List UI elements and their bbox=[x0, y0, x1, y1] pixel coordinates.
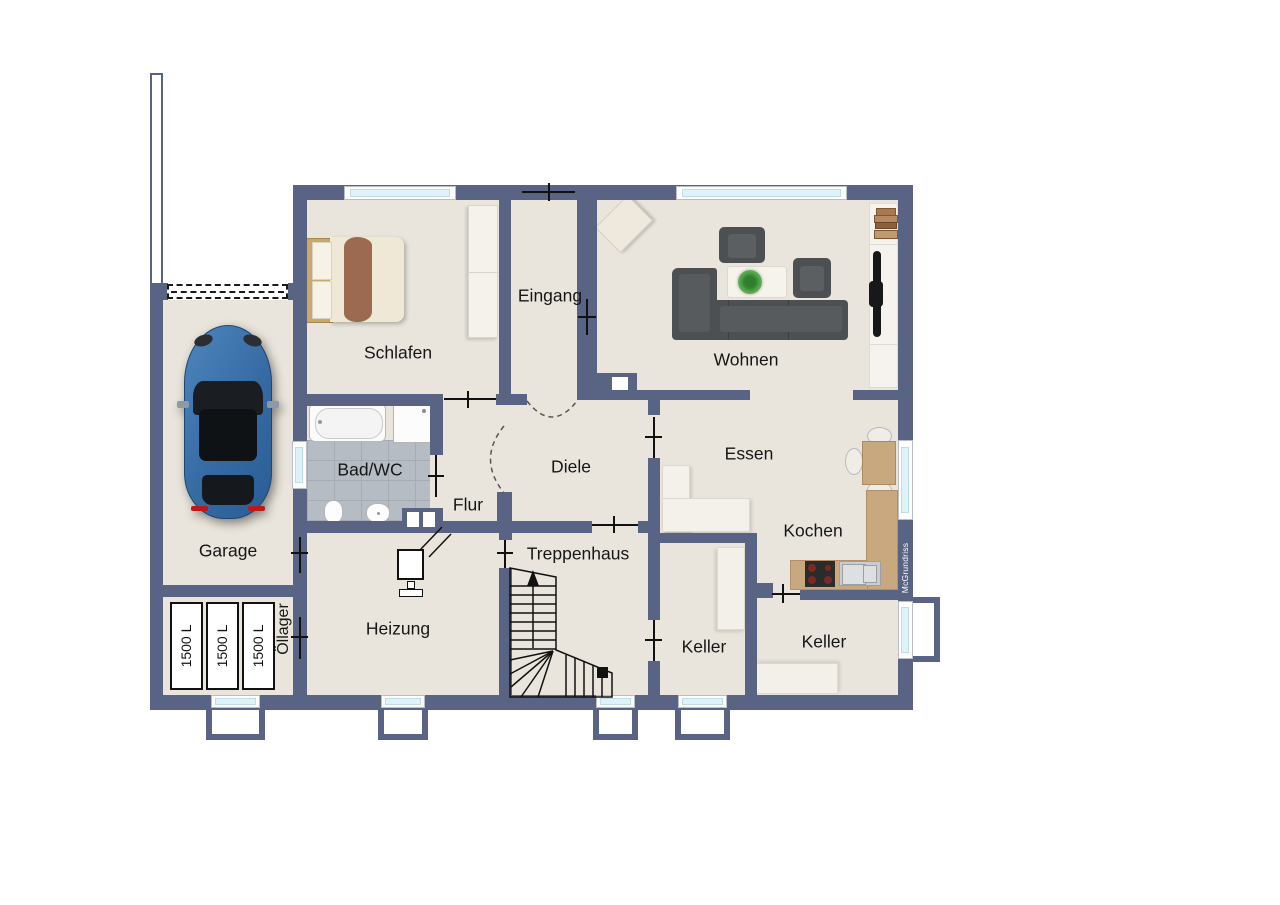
wall-kochen-keller bbox=[800, 590, 898, 600]
wall-diele-essen-top bbox=[648, 400, 660, 415]
door-schlafen bbox=[444, 398, 496, 400]
wall-schlafen-bad bbox=[293, 394, 443, 406]
door-diele-treppenhaus-tick bbox=[613, 516, 615, 533]
garage-door bbox=[167, 284, 288, 299]
keller-shelf bbox=[717, 547, 745, 630]
door-kochen-keller-tick bbox=[782, 584, 784, 603]
bathtub bbox=[309, 403, 386, 442]
wall-garage-left bbox=[150, 283, 163, 695]
door-schlafen-tick bbox=[467, 391, 469, 408]
light-well-heizung bbox=[378, 705, 428, 740]
label-keller-left: Keller bbox=[682, 638, 727, 656]
wall-garage-top-right bbox=[288, 283, 307, 300]
wall-bottom bbox=[150, 695, 913, 710]
bidet bbox=[366, 503, 390, 523]
door-garage-heizung-tick bbox=[291, 552, 308, 554]
shaft-1 bbox=[407, 512, 419, 527]
window-wohnen-glass bbox=[682, 189, 841, 197]
corner-bench bbox=[662, 465, 748, 530]
books bbox=[874, 208, 896, 242]
window-bad-glass bbox=[295, 447, 303, 483]
wardrobe bbox=[468, 205, 498, 338]
boiler-neck bbox=[407, 581, 415, 589]
shower bbox=[393, 404, 431, 443]
door-garage-heizung bbox=[299, 537, 301, 573]
tv bbox=[871, 251, 885, 337]
window-essen-glass bbox=[901, 447, 909, 513]
label-bad: Bad/WC bbox=[337, 461, 402, 479]
window-schlafen-glass bbox=[350, 189, 450, 197]
shaft-2 bbox=[423, 512, 435, 527]
wall-bad-right bbox=[430, 394, 443, 455]
chimney-flue bbox=[612, 377, 628, 390]
light-well-treppenhaus bbox=[593, 705, 638, 740]
armchair-top bbox=[719, 227, 765, 263]
wall-diele-essen-bottom bbox=[648, 458, 660, 522]
keller-workbench bbox=[756, 663, 838, 694]
door-kochen-keller bbox=[772, 593, 800, 595]
window-treppenhaus-glass bbox=[600, 698, 631, 705]
wall-wohnen-essen-right bbox=[853, 390, 898, 400]
stove bbox=[805, 561, 835, 587]
label-keller-right: Keller bbox=[802, 633, 847, 651]
label-garage: Garage bbox=[199, 542, 257, 560]
boiler-base bbox=[399, 589, 423, 597]
boundary-wall bbox=[150, 73, 163, 285]
oil-tank-1-label: 1500 L bbox=[178, 606, 194, 686]
label-oellager: Öllager bbox=[276, 603, 292, 655]
door-bad-tick bbox=[428, 475, 444, 477]
door-diele-essen-tick bbox=[645, 436, 662, 438]
bed bbox=[306, 237, 404, 322]
door-diele-treppenhaus bbox=[592, 524, 638, 526]
door-treppenhaus-keller-tick bbox=[645, 639, 662, 641]
label-flur: Flur bbox=[453, 496, 483, 514]
wall-treppenhaus-keller-top bbox=[648, 522, 660, 620]
plant bbox=[738, 270, 762, 294]
wall-flur-stub bbox=[496, 394, 527, 405]
light-well-keller bbox=[675, 705, 730, 740]
door-heizung-oellager-tick bbox=[291, 636, 308, 638]
dining-chair-left bbox=[845, 448, 863, 475]
window-oellager-glass bbox=[215, 698, 256, 705]
window-keller-bottom-glass bbox=[682, 698, 723, 705]
window-keller-right-glass bbox=[901, 607, 909, 653]
watermark: McGrundriss bbox=[900, 533, 912, 603]
wall-garage-oellager bbox=[150, 585, 307, 597]
floor-plan: 1500 L 1500 L 1500 L bbox=[0, 0, 1280, 905]
label-heizung: Heizung bbox=[366, 620, 430, 638]
door-eingang-wohnen-tick bbox=[578, 316, 596, 318]
wall-keller-keller bbox=[745, 543, 757, 695]
window-heizung-glass bbox=[385, 698, 421, 705]
light-well-oellager bbox=[206, 705, 265, 740]
light-well-right bbox=[910, 597, 940, 662]
wall-wohnen-essen-left bbox=[637, 390, 750, 400]
door-heizung-treppenhaus-tick bbox=[497, 552, 513, 554]
oil-tank-3-label: 1500 L bbox=[250, 606, 266, 686]
wall-treppenhaus-left bbox=[499, 568, 512, 695]
door-entrance-tick bbox=[548, 183, 550, 201]
wall-garage-top-left bbox=[150, 283, 168, 300]
wall-keller-stub bbox=[757, 583, 773, 598]
wall-treppenhaus-left-top bbox=[499, 533, 512, 540]
label-eingang: Eingang bbox=[518, 287, 582, 305]
oil-tank-2-label: 1500 L bbox=[214, 606, 230, 686]
label-wohnen: Wohnen bbox=[714, 351, 779, 369]
boiler bbox=[397, 549, 424, 580]
label-kochen: Kochen bbox=[783, 522, 842, 540]
dining-table bbox=[862, 441, 896, 485]
label-treppenhaus: Treppenhaus bbox=[527, 545, 629, 563]
toilet bbox=[324, 500, 343, 523]
car bbox=[184, 325, 272, 519]
label-diele: Diele bbox=[551, 458, 591, 476]
wall-flur-diele-stub bbox=[497, 492, 512, 522]
label-essen: Essen bbox=[725, 445, 774, 463]
wall-chimney-block bbox=[577, 373, 637, 400]
wall-eingang-left bbox=[499, 200, 511, 394]
kitchen-sink bbox=[839, 561, 881, 586]
label-schlafen: Schlafen bbox=[364, 344, 432, 362]
door-heizung-treppenhaus bbox=[504, 540, 506, 568]
wall-keller-top bbox=[660, 533, 757, 543]
door-heizung-oellager bbox=[299, 617, 301, 659]
wall-treppenhaus-keller-bottom bbox=[648, 661, 660, 695]
